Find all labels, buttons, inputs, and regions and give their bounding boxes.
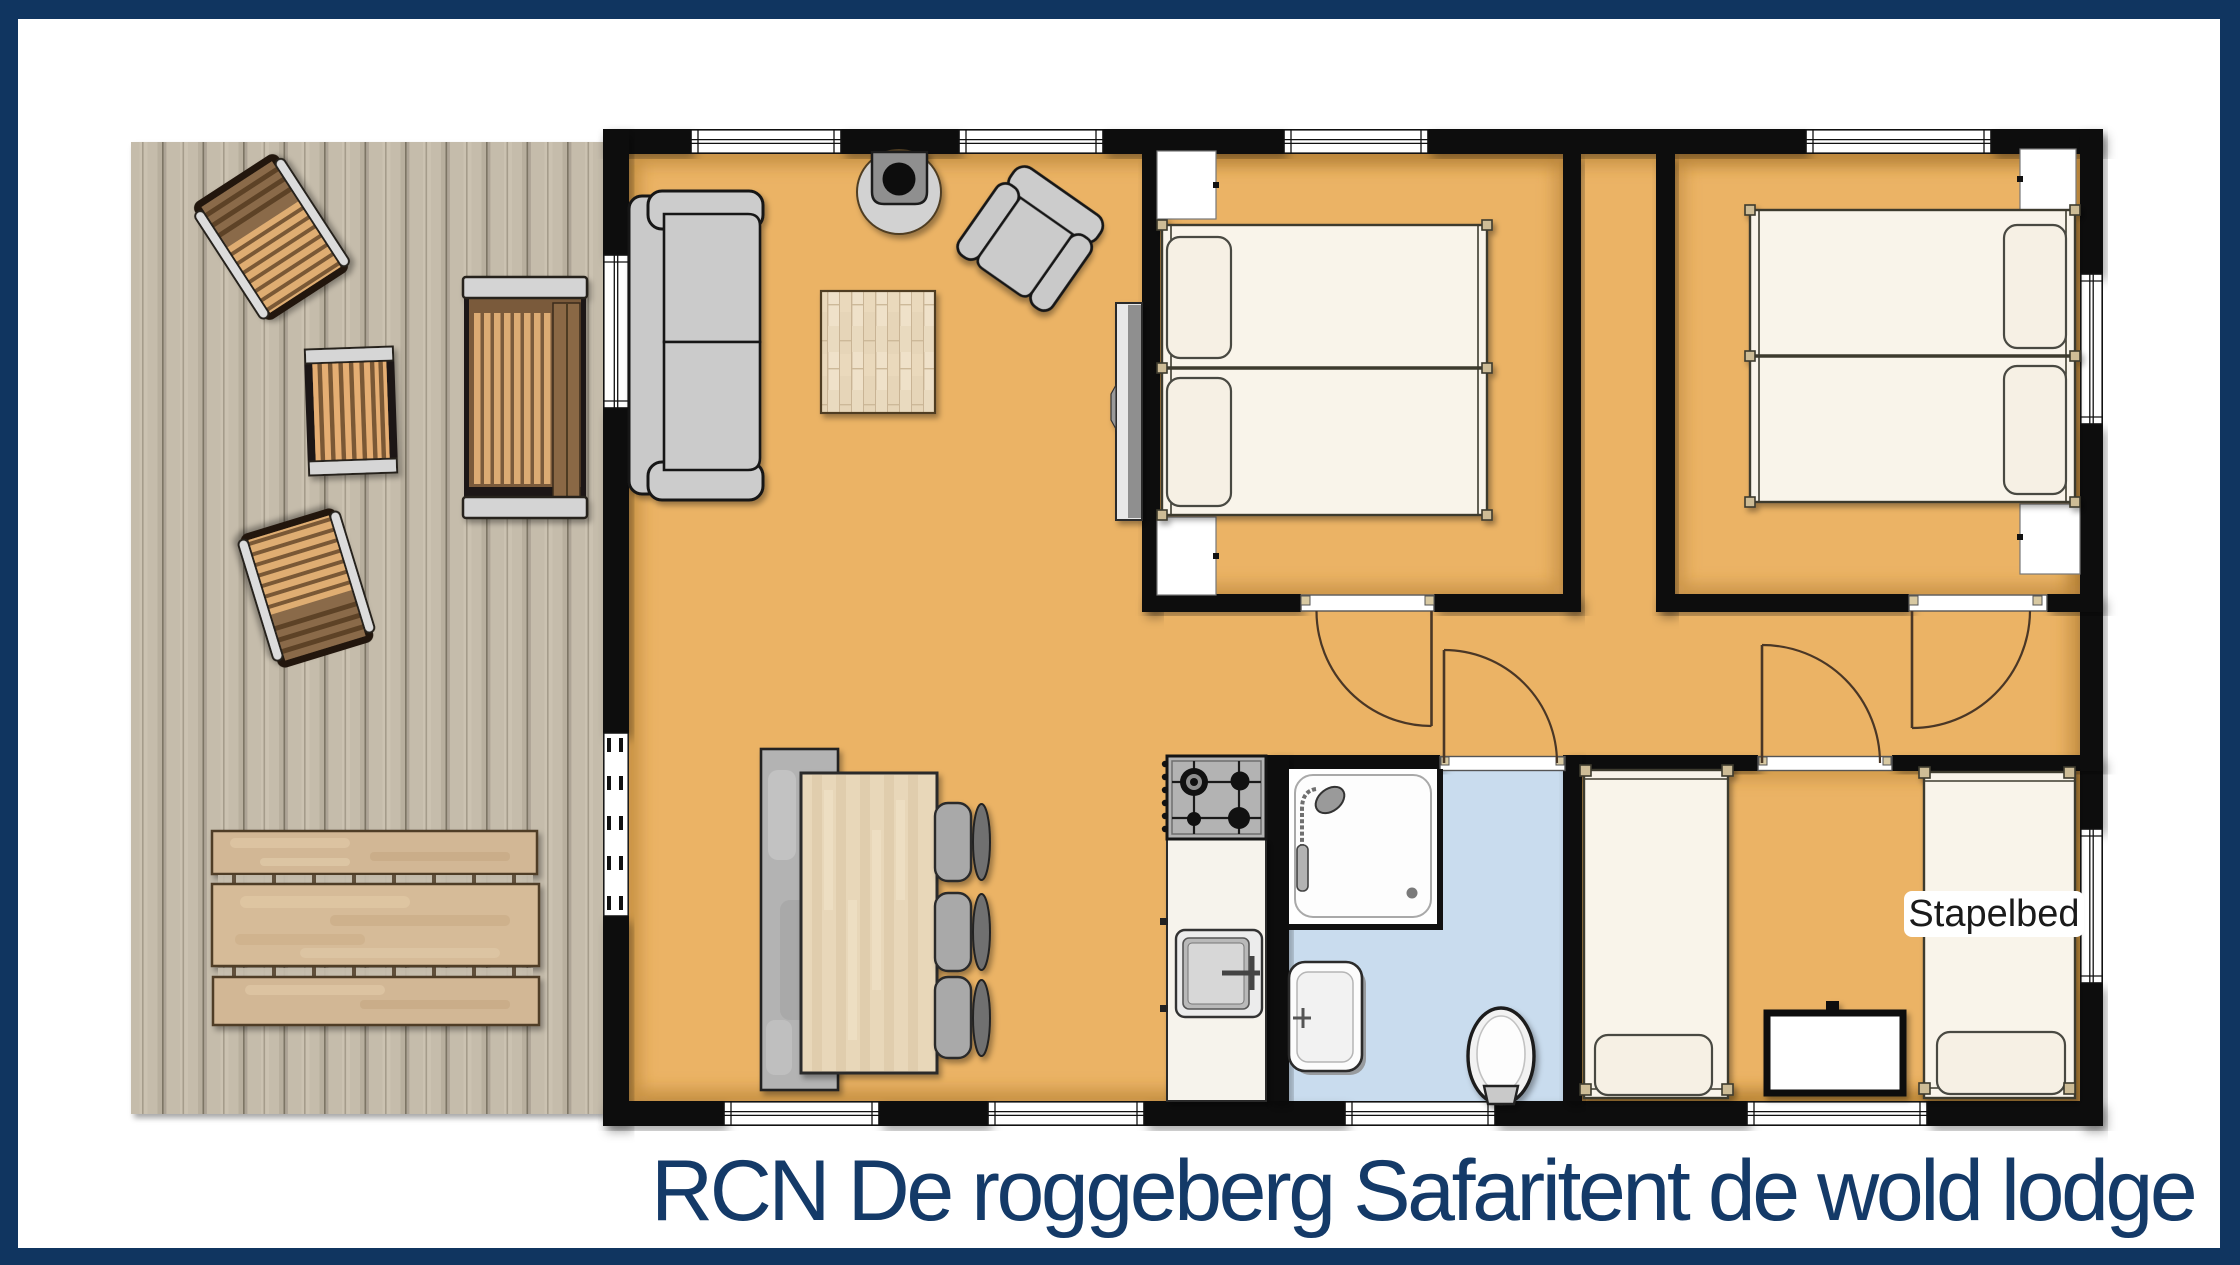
svg-text:RCN De roggeberg Safaritent de: RCN De roggeberg Safaritent de wold lodg… [651,1143,2195,1239]
svg-text:Stapelbed: Stapelbed [1908,893,2079,935]
